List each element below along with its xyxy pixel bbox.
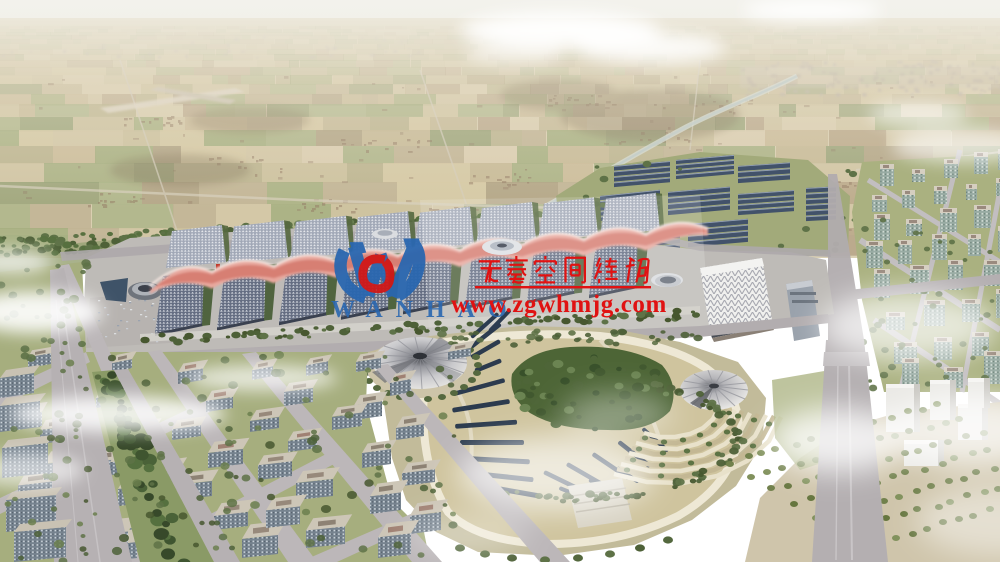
svg-text:www.zgwhmjg.com: www.zgwhmjg.com xyxy=(451,291,667,318)
